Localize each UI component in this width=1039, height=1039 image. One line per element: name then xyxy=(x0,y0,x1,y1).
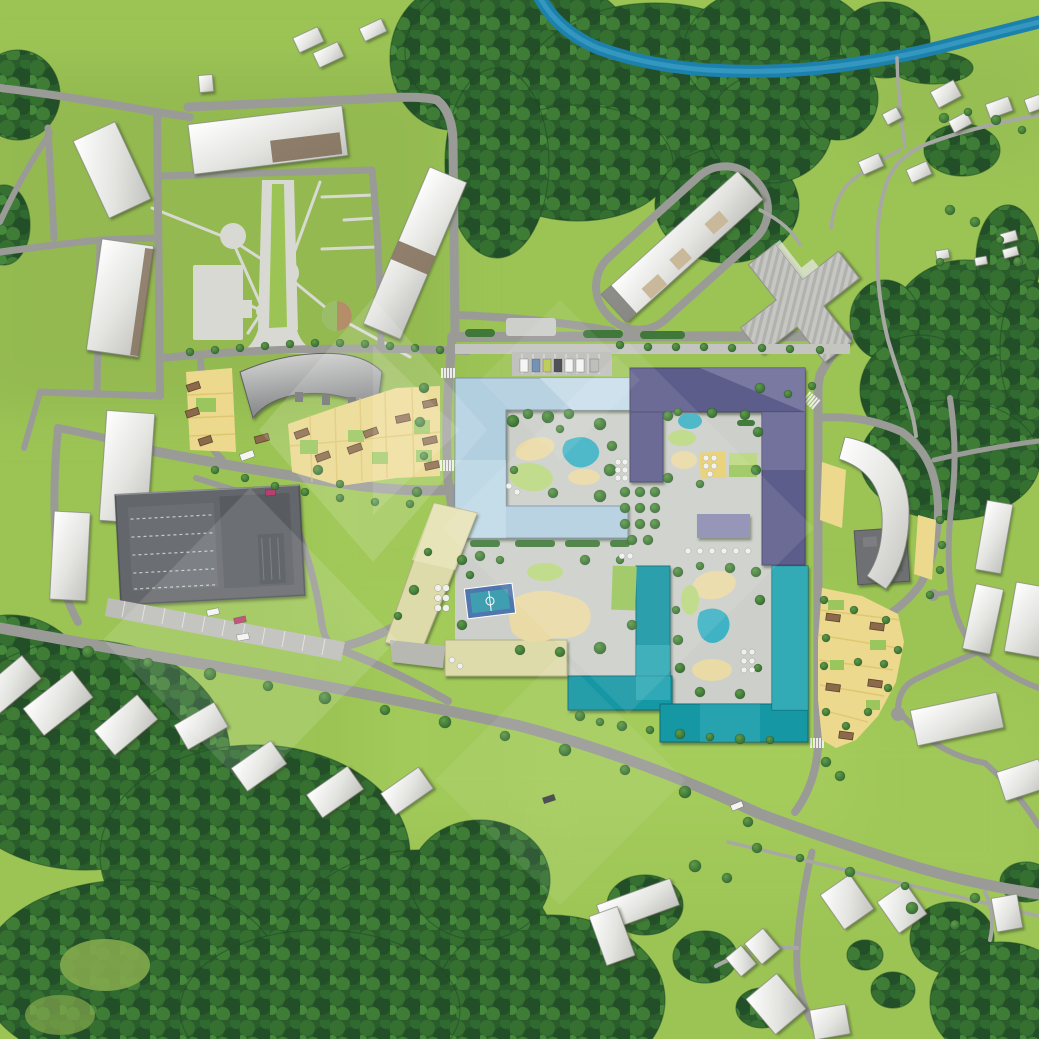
park-circle-plaza xyxy=(220,223,246,249)
masterplan-svg xyxy=(0,0,1039,1039)
forest-meadow xyxy=(60,939,150,991)
rooftop-car xyxy=(265,490,275,497)
site-plan-map xyxy=(0,0,1039,1039)
estate-slab-6 xyxy=(50,511,91,601)
park-plaza xyxy=(193,265,243,340)
